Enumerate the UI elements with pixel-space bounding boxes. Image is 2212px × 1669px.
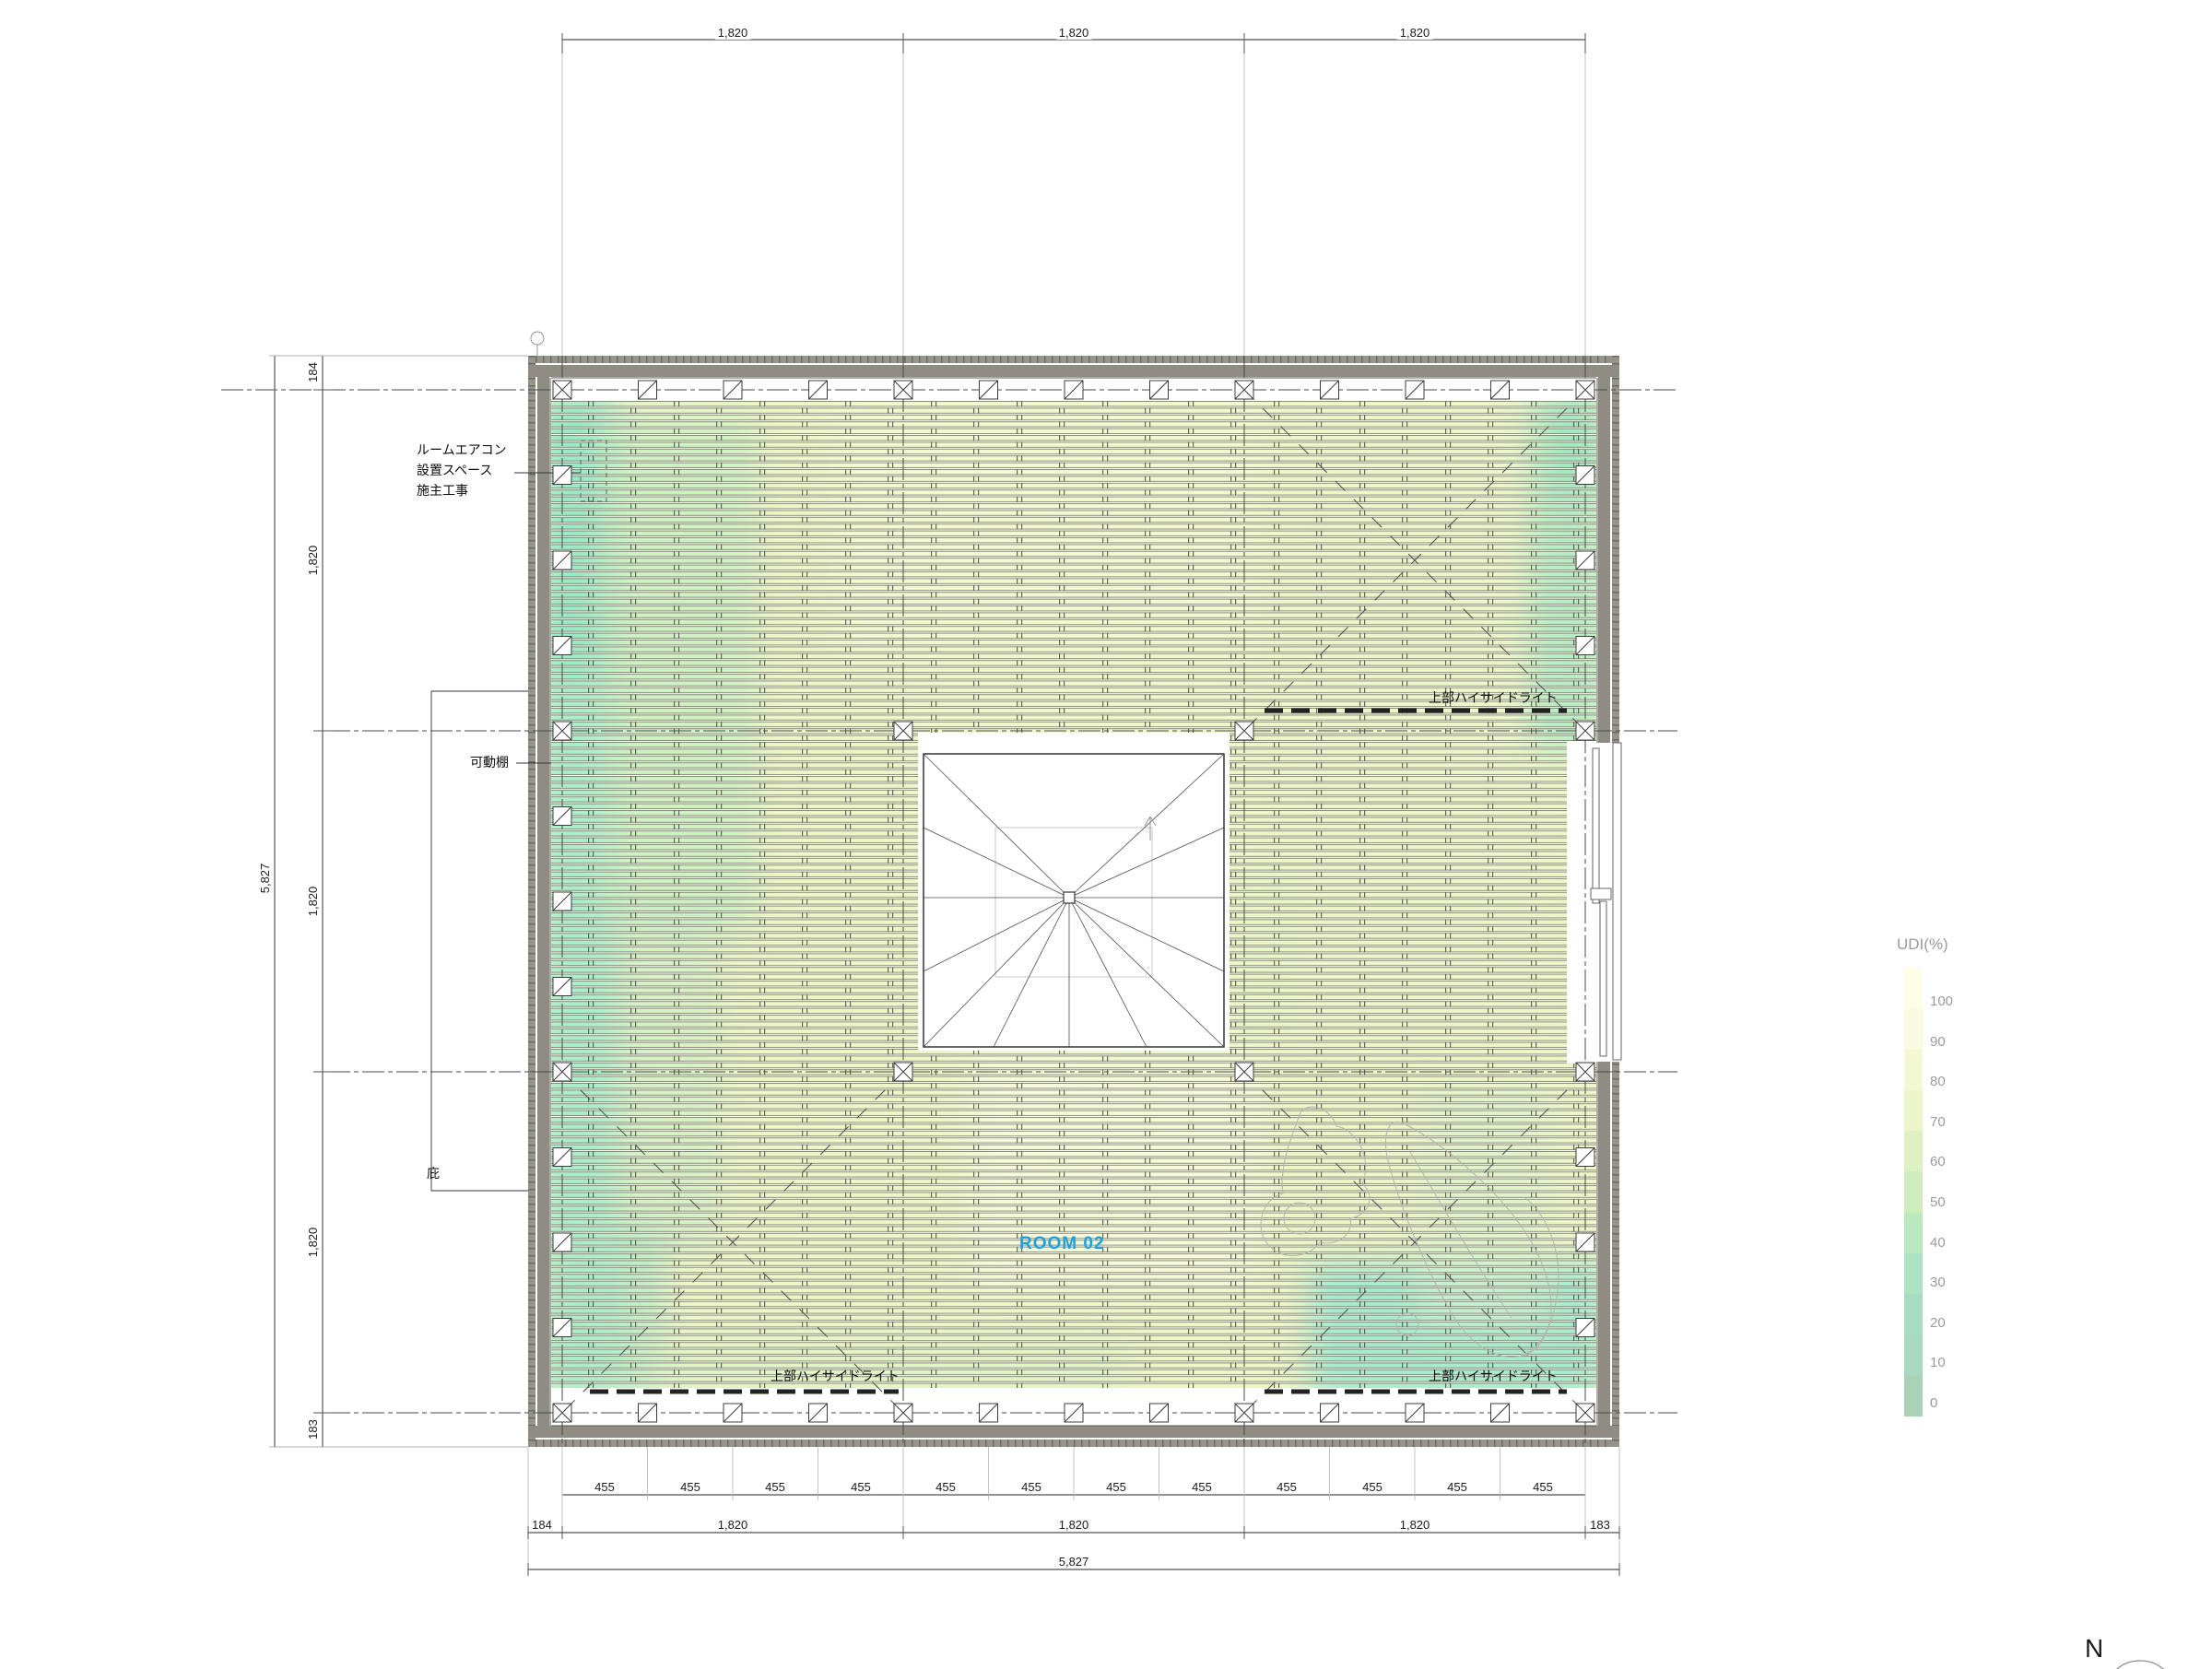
dim-left-5: 183: [307, 1416, 320, 1442]
high-sidelight-label-se: 上部ハイサイドライト: [1429, 1369, 1558, 1383]
aircon-note-line3: 施主工事: [417, 484, 468, 498]
dim-bottom-total: 5,827: [1056, 1556, 1092, 1569]
dim-bottom-1820b: 1,820: [1056, 1519, 1092, 1532]
dim-455-7: 455: [1103, 1481, 1129, 1494]
high-sidelight-label-sw: 上部ハイサイドライト: [771, 1369, 900, 1383]
dim-left-total: 5,827: [259, 861, 272, 897]
aircon-note-line2: 設置スペース: [417, 464, 492, 477]
dim-455-10: 455: [1359, 1481, 1385, 1494]
legend-swatch: [1904, 1376, 1923, 1416]
udi-color-scale: [1904, 968, 1923, 1416]
dim-455-1: 455: [592, 1481, 618, 1494]
legend-swatch: [1904, 968, 1923, 1008]
legend-tick-80: 80: [1930, 1074, 1946, 1089]
dim-bottom-183: 183: [1587, 1519, 1613, 1532]
dim-455-9: 455: [1274, 1481, 1300, 1494]
legend-swatch: [1904, 1294, 1923, 1334]
stair: [924, 754, 1224, 1047]
dim-left-1: 184: [307, 359, 320, 385]
legend-swatch: [1904, 1131, 1923, 1171]
legend-tick-40: 40: [1930, 1235, 1946, 1251]
dim-bottom-1820c: 1,820: [1397, 1519, 1433, 1532]
dim-455-4: 455: [848, 1481, 874, 1494]
legend-tick-10: 10: [1930, 1355, 1946, 1370]
eave-label: 庇: [427, 1167, 440, 1181]
legend-tick-0: 0: [1930, 1395, 1937, 1411]
legend-tick-60: 60: [1930, 1154, 1946, 1169]
legend-swatch: [1904, 1050, 1923, 1090]
floor-plan-drawing: [0, 0, 2212, 1669]
dim-top-2: 1,820: [1056, 27, 1092, 40]
dim-455-5: 455: [933, 1481, 959, 1494]
dim-455-6: 455: [1018, 1481, 1044, 1494]
dim-455-12: 455: [1530, 1481, 1556, 1494]
legend-swatch: [1904, 1171, 1923, 1212]
movable-shelf-label: 可動棚: [470, 756, 509, 770]
legend-swatch: [1904, 1213, 1923, 1253]
legend-title: UDI(%): [1897, 936, 1948, 954]
legend-swatch: [1904, 1253, 1923, 1294]
dim-455-2: 455: [677, 1481, 703, 1494]
dim-left-3: 1,820: [307, 884, 320, 920]
north-label: N: [2085, 1635, 2103, 1663]
legend-swatch: [1904, 1334, 1923, 1375]
legend-tick-30: 30: [1930, 1275, 1946, 1290]
dim-455-11: 455: [1444, 1481, 1470, 1494]
room-label: ROOM 02: [1019, 1235, 1105, 1254]
dim-455-8: 455: [1189, 1481, 1215, 1494]
dim-bottom-184: 184: [529, 1519, 555, 1532]
legend-tick-90: 90: [1930, 1034, 1946, 1050]
legend-tick-20: 20: [1930, 1315, 1946, 1331]
dim-left-2: 1,820: [307, 543, 320, 579]
floor-plan-sheet: 1,820 1,820 1,820 5,827 184 1,820 1,820 …: [0, 0, 2212, 1669]
legend-tick-70: 70: [1930, 1114, 1946, 1130]
high-sidelight-label-ne: 上部ハイサイドライト: [1429, 691, 1558, 705]
dim-bottom-1820a: 1,820: [715, 1519, 751, 1532]
north-compass-icon: [2110, 1661, 2171, 1669]
dim-top-1: 1,820: [715, 27, 751, 40]
dim-left-4: 1,820: [307, 1225, 320, 1261]
legend-swatch: [1904, 1008, 1923, 1049]
legend-tick-100: 100: [1930, 993, 1953, 1009]
legend-swatch: [1904, 1090, 1923, 1131]
aircon-note-line1: ルームエアコン: [417, 443, 507, 457]
dim-top-3: 1,820: [1397, 27, 1433, 40]
dim-455-3: 455: [762, 1481, 788, 1494]
legend-tick-50: 50: [1930, 1194, 1946, 1210]
